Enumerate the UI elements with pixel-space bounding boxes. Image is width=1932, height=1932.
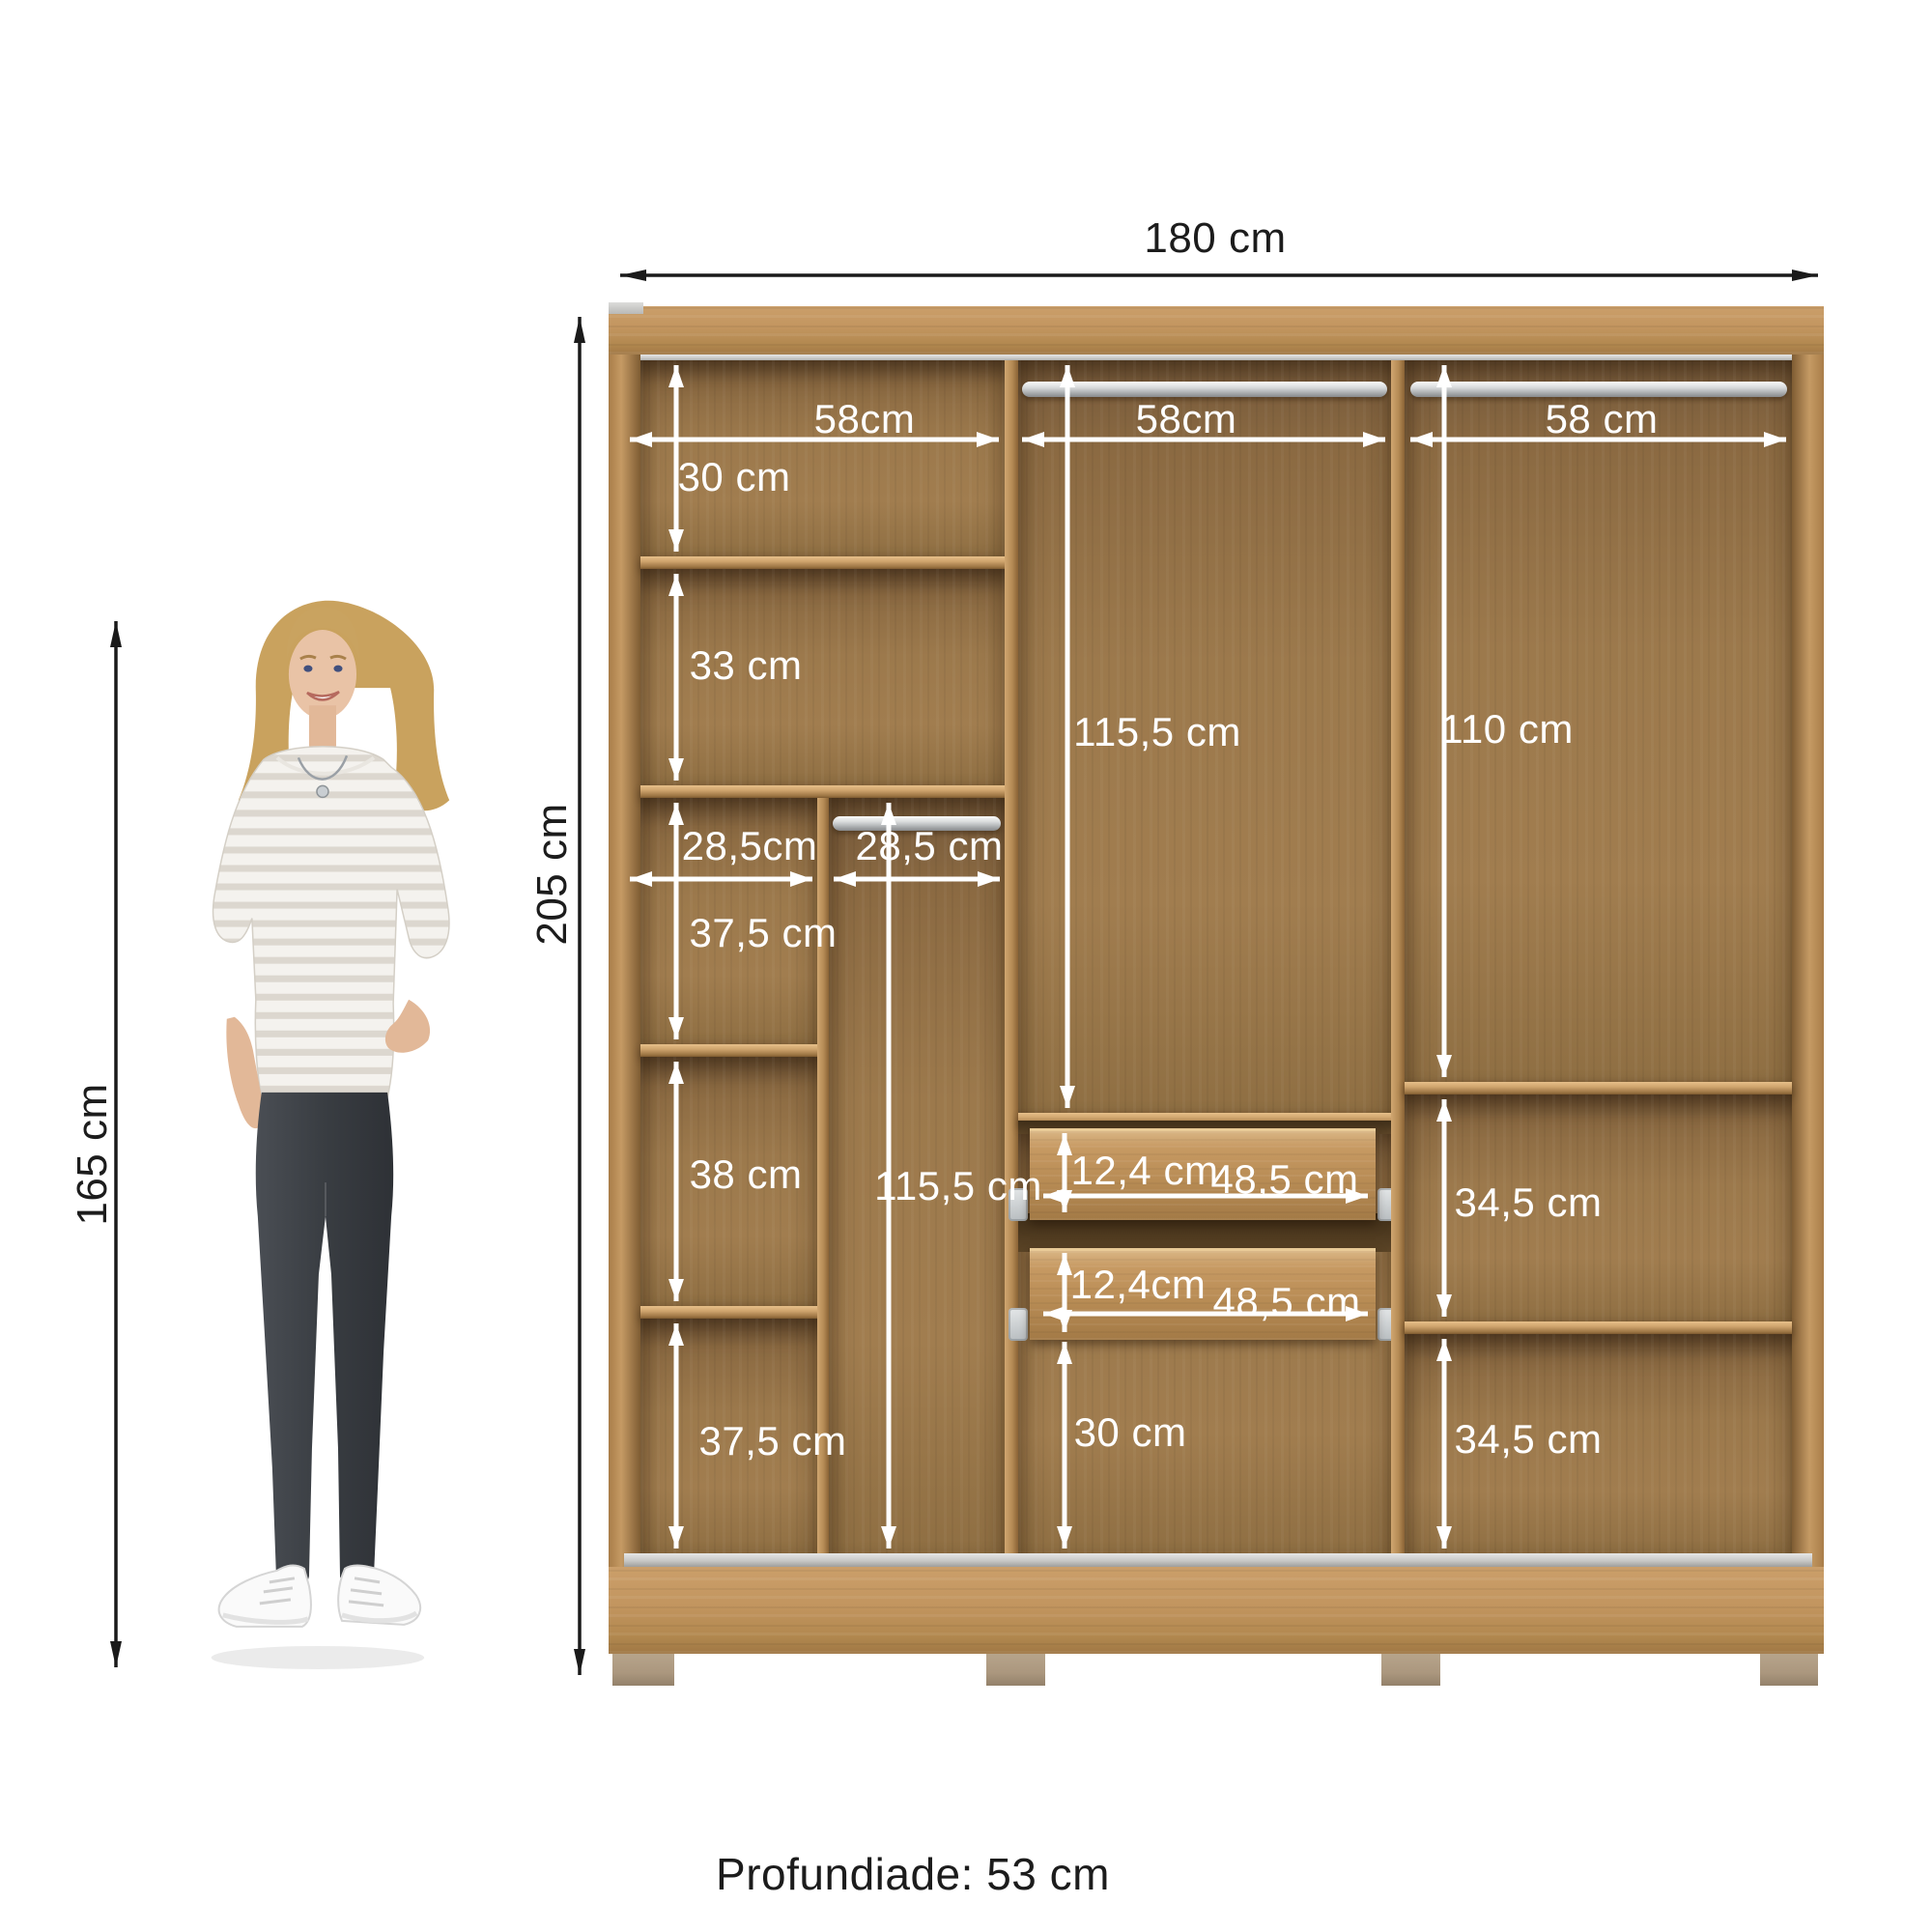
wardrobe-foot	[612, 1654, 674, 1686]
floor-shadow	[212, 1646, 424, 1669]
total-width-label: 180 cm	[1144, 214, 1286, 263]
person-eye-right	[333, 666, 342, 672]
hanging-rod-col2	[1022, 382, 1387, 397]
drawer2-width-label: 48,5 cm	[1213, 1279, 1361, 1325]
shelf	[1405, 1082, 1792, 1094]
col2-width-label: 58cm	[1136, 396, 1237, 442]
depth-note-label: Profundiade: 53 cm	[716, 1848, 1110, 1900]
wardrobe-top-panel	[609, 306, 1824, 355]
wardrobe-foot	[1760, 1654, 1818, 1686]
col1-30cm-label: 30 cm	[678, 454, 791, 500]
wardrobe-left-side-panel	[609, 355, 640, 1654]
shelf	[640, 1306, 817, 1319]
drawer1-width-label: 48,5 cm	[1211, 1156, 1359, 1203]
wardrobe-foot	[1381, 1654, 1440, 1686]
hanging-rod-col3	[1410, 382, 1787, 397]
drawer2-height-label: 12,4cm	[1070, 1262, 1207, 1308]
person-jeans	[256, 1093, 393, 1591]
bottom-sliding-rail	[624, 1553, 1812, 1567]
reference-person-illustration	[193, 597, 495, 1673]
col3-345-upper-label: 34,5 cm	[1455, 1179, 1603, 1226]
wardrobe-base-plinth	[609, 1567, 1824, 1654]
col1-38cm-label: 38 cm	[690, 1151, 803, 1198]
person-neck	[309, 705, 336, 751]
col1-width-label: 58cm	[814, 396, 916, 442]
person-eye-left	[303, 666, 312, 672]
drawer-slide-hardware	[1009, 1308, 1028, 1341]
person-pendant	[317, 785, 328, 797]
drawer1-height-label: 12,4 cm	[1071, 1148, 1219, 1194]
wardrobe-foot	[986, 1654, 1045, 1686]
shelf	[640, 556, 1005, 569]
divider-col1-col2	[1005, 360, 1018, 1553]
col2-1155-label: 115,5 cm	[1073, 709, 1241, 755]
col3-110cm-label: 110 cm	[1440, 706, 1574, 753]
person-height-label: 165 cm	[69, 1083, 117, 1225]
shelf	[640, 785, 1005, 798]
col1-375-upper-label: 37,5 cm	[690, 910, 838, 956]
shelf	[640, 1044, 817, 1057]
col1-33cm-label: 33 cm	[690, 642, 803, 689]
total-height-label: 205 cm	[528, 803, 577, 945]
col1-1155-label: 115,5 cm	[874, 1163, 1042, 1209]
wardrobe-dimension-diagram: 180 cm 205 cm 165 cm 58cm 58cm 58 cm 30 …	[0, 0, 1932, 1932]
col1-375-lower-label: 37,5 cm	[699, 1418, 847, 1464]
col3-width-label: 58 cm	[1546, 396, 1659, 442]
wardrobe-right-side-panel	[1792, 355, 1824, 1654]
col2-30cm-label: 30 cm	[1074, 1409, 1187, 1456]
shelf	[1405, 1321, 1792, 1334]
top-corner-metal-cap	[609, 302, 643, 314]
col1-285-left-label: 28,5cm	[682, 823, 818, 869]
col1-285-right-label: 28,5 cm	[856, 823, 1004, 869]
divider-col2-col3	[1391, 360, 1405, 1553]
col3-345-lower-label: 34,5 cm	[1455, 1416, 1603, 1463]
